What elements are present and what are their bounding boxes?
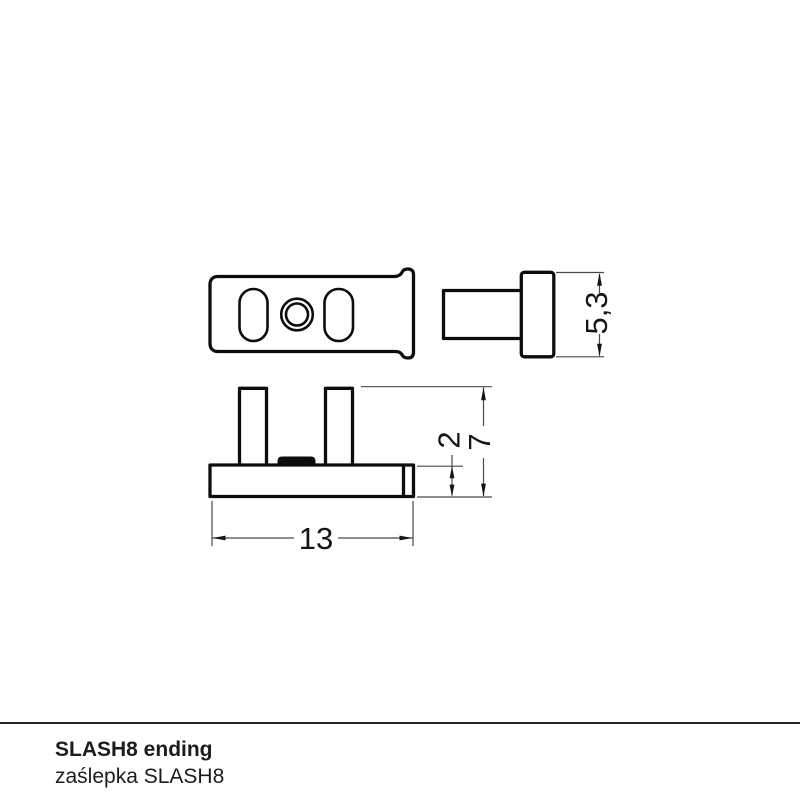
dimension-clip-height-label: 2: [432, 431, 467, 448]
dimension-width-label: 13: [299, 521, 333, 556]
product-subtitle: zaślepka SLASH8: [55, 765, 224, 789]
arrowhead-up: [481, 387, 486, 400]
side-view: [444, 272, 554, 357]
top-view: [210, 269, 414, 358]
front-view-clip: [278, 457, 316, 465]
dimension-flange-height: 5,3: [556, 273, 614, 357]
slot-left: [240, 289, 268, 341]
arrowhead-down: [597, 344, 602, 357]
side-view-plug: [444, 291, 522, 339]
dimension-total-height: 7: [361, 387, 497, 497]
footer-divider: [0, 722, 800, 724]
front-view-pin-right: [326, 388, 353, 464]
technical-drawing: 5,3 7 2: [0, 0, 800, 800]
dimension-total-height-label: 7: [462, 433, 497, 450]
front-view-base: [210, 465, 414, 497]
center-hole-inner: [286, 304, 308, 326]
arrowhead-left: [213, 536, 226, 541]
slot-right: [325, 289, 354, 341]
arrowhead-right: [400, 536, 413, 541]
front-view: [210, 388, 414, 496]
drawing-page: 5,3 7 2: [0, 0, 800, 800]
arrowhead-up: [450, 466, 455, 478]
arrowhead-up: [597, 273, 602, 286]
dimension-flange-height-label: 5,3: [579, 291, 614, 334]
product-title: SLASH8 ending: [55, 738, 213, 762]
front-view-pin-left: [240, 388, 267, 464]
side-view-flange: [521, 272, 554, 357]
arrowhead-down: [481, 484, 486, 497]
dimension-clip-height: 2: [417, 431, 467, 496]
dimension-width: 13: [212, 501, 413, 556]
arrowhead-down: [450, 485, 455, 497]
